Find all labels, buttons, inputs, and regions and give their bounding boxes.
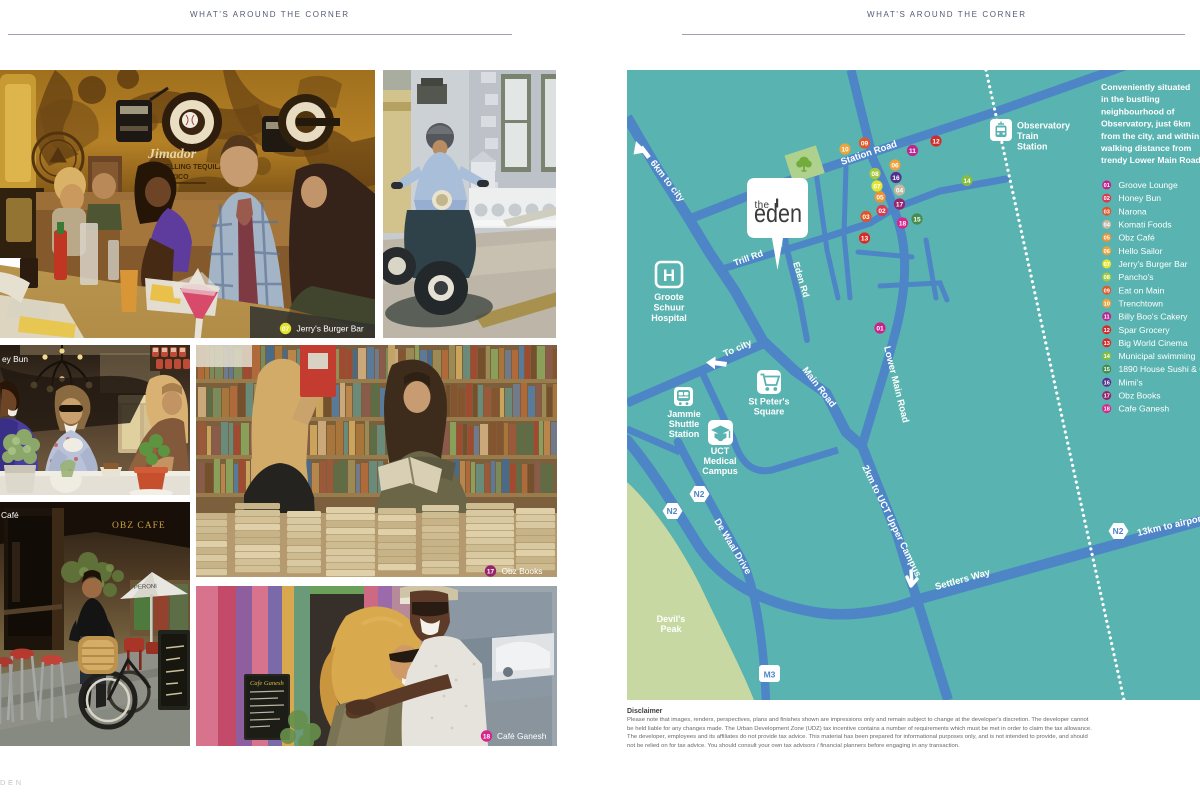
svg-text:Observatory, just 6km: Observatory, just 6km: [1101, 119, 1191, 129]
svg-text:17: 17: [487, 569, 495, 576]
svg-text:Honey Bun: Honey Bun: [1119, 193, 1162, 203]
svg-text:17: 17: [896, 201, 904, 208]
svg-text:Conveniently situated: Conveniently situated: [1101, 82, 1190, 92]
svg-text:Peak: Peak: [660, 624, 682, 634]
svg-text:Jammie: Jammie: [667, 409, 701, 419]
svg-text:12: 12: [932, 138, 940, 145]
svg-text:Square: Square: [754, 407, 785, 417]
svg-text:07: 07: [282, 326, 290, 333]
svg-text:16: 16: [1104, 380, 1110, 386]
svg-text:Hospital: Hospital: [651, 313, 687, 323]
svg-text:OBZ CAFE: OBZ CAFE: [112, 521, 166, 531]
svg-text:Jimador: Jimador: [147, 147, 197, 162]
svg-text:11: 11: [909, 148, 916, 155]
svg-text:1890 House Sushi & G: 1890 House Sushi & G: [1119, 364, 1200, 374]
svg-text:Jerry's Burger Bar: Jerry's Burger Bar: [1119, 259, 1188, 269]
svg-text:18: 18: [483, 734, 491, 741]
svg-text:Jerry's Burger Bar: Jerry's Burger Bar: [297, 324, 364, 334]
svg-text:Devil's: Devil's: [657, 614, 686, 624]
svg-text:Station: Station: [1017, 142, 1048, 152]
svg-text:Hello Sailor: Hello Sailor: [1119, 246, 1163, 256]
svg-text:Narona: Narona: [1119, 206, 1147, 216]
svg-text:10: 10: [841, 146, 849, 153]
svg-text:15: 15: [913, 216, 921, 223]
svg-text:18: 18: [899, 220, 907, 227]
svg-text:N2: N2: [667, 506, 678, 516]
svg-text:walking distance from: walking distance from: [1100, 143, 1192, 153]
svg-text:Groote: Groote: [654, 292, 684, 302]
svg-text:03: 03: [862, 214, 870, 221]
svg-text:from the city, and within: from the city, and within: [1101, 131, 1199, 141]
svg-text:PERONI: PERONI: [134, 584, 158, 591]
svg-text:04: 04: [896, 187, 904, 194]
svg-text:Medical: Medical: [703, 456, 736, 466]
svg-text:Groove Lounge: Groove Lounge: [1119, 180, 1178, 190]
svg-text:Trenchtown: Trenchtown: [1119, 298, 1164, 308]
svg-text:06: 06: [1104, 249, 1110, 255]
svg-text:Campus: Campus: [702, 466, 738, 476]
svg-text:05: 05: [1104, 236, 1110, 242]
svg-text:04: 04: [1104, 223, 1111, 229]
svg-text:01: 01: [876, 325, 884, 332]
svg-text:neighbourhood of: neighbourhood of: [1101, 106, 1175, 116]
svg-text:in the bustling: in the bustling: [1101, 94, 1160, 104]
svg-text:08: 08: [871, 171, 879, 178]
svg-text:02: 02: [878, 208, 886, 215]
svg-text:07: 07: [1104, 262, 1110, 268]
svg-text:Pancho's: Pancho's: [1119, 272, 1154, 282]
svg-text:Obz Café: Obz Café: [1119, 233, 1156, 243]
svg-text:09: 09: [1104, 288, 1110, 294]
svg-text:Eat on Main: Eat on Main: [1119, 285, 1165, 295]
svg-text:10: 10: [1104, 301, 1110, 307]
svg-text:17: 17: [1104, 394, 1110, 400]
svg-text:Station: Station: [669, 429, 700, 439]
svg-text:13: 13: [1104, 341, 1110, 347]
svg-text:07: 07: [873, 183, 881, 190]
svg-text:Café Ganesh: Café Ganesh: [497, 731, 547, 741]
svg-text:N2: N2: [1113, 526, 1124, 536]
svg-text:16: 16: [892, 175, 900, 182]
svg-text:18: 18: [1104, 407, 1110, 413]
svg-text:ey Bun: ey Bun: [2, 354, 28, 364]
svg-text:03: 03: [1104, 209, 1110, 215]
svg-text:Komati Foods: Komati Foods: [1119, 220, 1172, 230]
svg-text:Mimi’s: Mimi’s: [1119, 377, 1143, 387]
svg-text:Obz Books: Obz Books: [1119, 391, 1161, 401]
svg-text:06: 06: [891, 162, 899, 169]
svg-text:14: 14: [1104, 354, 1111, 360]
svg-text:Train: Train: [1017, 131, 1039, 141]
svg-text:Shuttle: Shuttle: [669, 419, 700, 429]
svg-text:Café: Café: [1, 510, 19, 520]
svg-text:N2: N2: [694, 489, 705, 499]
svg-text:11: 11: [1104, 315, 1110, 321]
svg-text:13: 13: [861, 235, 869, 242]
svg-text:Schuur: Schuur: [653, 303, 685, 313]
svg-text:15: 15: [1104, 367, 1110, 373]
svg-text:H: H: [663, 266, 675, 285]
svg-text:14: 14: [963, 178, 971, 185]
svg-text:eden: eden: [754, 198, 802, 228]
svg-text:Observatory: Observatory: [1017, 121, 1070, 131]
svg-text:12: 12: [1104, 328, 1110, 334]
svg-text:trendy Lower Main Road: trendy Lower Main Road: [1101, 155, 1200, 165]
svg-text:Municipal swimming: Municipal swimming: [1119, 351, 1196, 361]
svg-text:Obz Books: Obz Books: [502, 566, 543, 576]
svg-text:01: 01: [1104, 183, 1110, 189]
svg-text:02: 02: [1104, 196, 1110, 202]
svg-text:UCT: UCT: [711, 446, 730, 456]
svg-text:Billy Boo's Cakery: Billy Boo's Cakery: [1119, 312, 1189, 322]
svg-text:05: 05: [876, 194, 884, 201]
svg-text:09: 09: [861, 140, 869, 147]
svg-text:M3: M3: [764, 670, 776, 680]
svg-text:St Peter's: St Peter's: [748, 397, 789, 407]
svg-text:Big World Cinema: Big World Cinema: [1119, 338, 1188, 348]
svg-text:Cafe Ganesh: Cafe Ganesh: [250, 680, 284, 687]
svg-text:Cafe Ganesh: Cafe Ganesh: [1119, 404, 1170, 414]
svg-text:08: 08: [1104, 275, 1110, 281]
svg-text:Spar Grocery: Spar Grocery: [1119, 325, 1171, 335]
